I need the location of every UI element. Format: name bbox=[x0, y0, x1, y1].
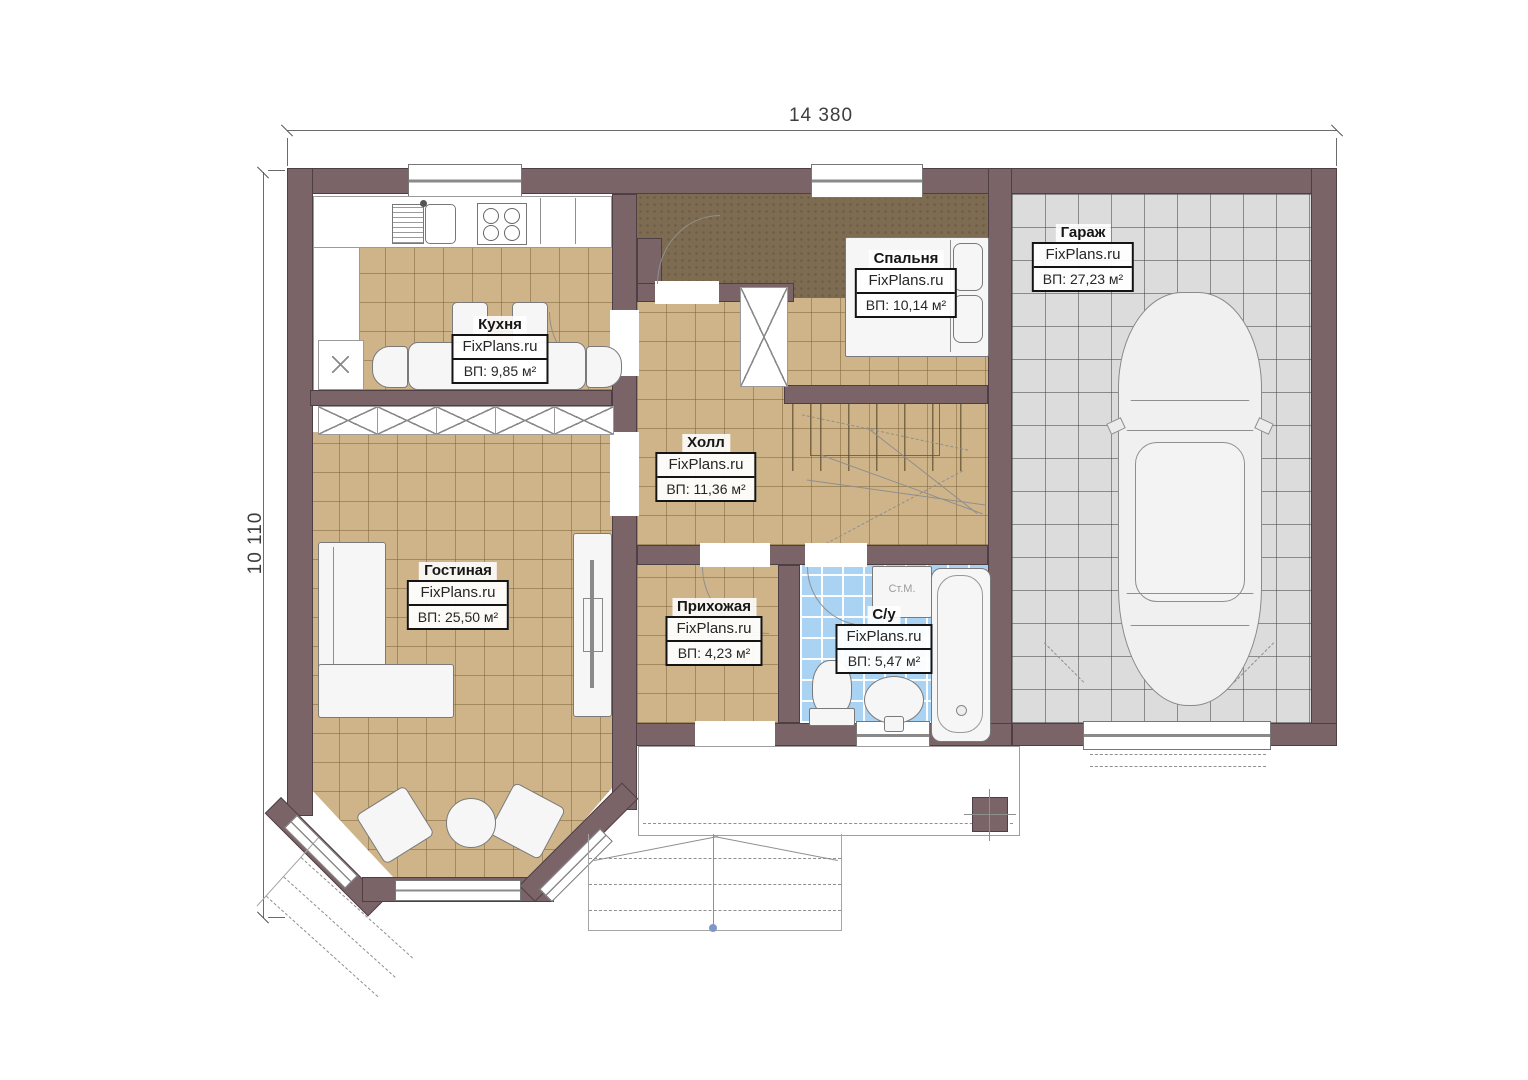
wardrobe-cell bbox=[378, 407, 437, 434]
pillow bbox=[953, 295, 983, 343]
dimension-extension bbox=[287, 138, 288, 166]
washing-machine-label: Ст.М. bbox=[873, 583, 931, 595]
room-label-box: FixPlans.ru ВП: 25,50 м² bbox=[407, 580, 509, 630]
chair bbox=[586, 346, 622, 388]
hall-entry-door-gap bbox=[700, 543, 770, 567]
washbasin-pedestal bbox=[884, 716, 904, 732]
watermark-text: FixPlans.ru bbox=[857, 270, 955, 294]
toilet-tank bbox=[809, 708, 855, 726]
car-windshield bbox=[1126, 430, 1254, 432]
step-line bbox=[589, 910, 841, 911]
room-label-box: FixPlans.ru ВП: 4,23 м² bbox=[665, 616, 762, 666]
room-area: ВП: 25,50 м² bbox=[409, 606, 507, 628]
room-name: С/у bbox=[867, 606, 900, 624]
car-hood-line bbox=[1130, 400, 1250, 402]
garage-door bbox=[1083, 721, 1271, 750]
chair bbox=[372, 346, 408, 388]
kitchen-sink-bowl bbox=[425, 204, 456, 244]
staircase-railing bbox=[810, 400, 940, 456]
porch-deck-edge bbox=[643, 823, 1013, 824]
room-name: Холл bbox=[682, 434, 730, 452]
room-label-garage: Гараж FixPlans.ru ВП: 27,23 м² bbox=[1032, 224, 1134, 292]
room-label-bedroom: Спальня FixPlans.ru ВП: 10,14 м² bbox=[855, 250, 957, 318]
kitchen-counter-divider bbox=[540, 198, 541, 244]
coffee-table-round bbox=[446, 798, 496, 848]
dimension-extension bbox=[268, 170, 285, 171]
room-label-bath: С/у FixPlans.ru ВП: 5,47 м² bbox=[835, 606, 932, 674]
stove-burner bbox=[504, 208, 520, 224]
room-label-living: Гостиная FixPlans.ru ВП: 25,50 м² bbox=[407, 562, 509, 630]
kitchen-counter-divider bbox=[575, 198, 576, 244]
dimension-height-label: 10 110 bbox=[245, 487, 267, 599]
room-name: Гостиная bbox=[419, 562, 497, 580]
watermark-text: FixPlans.ru bbox=[657, 454, 754, 478]
watermark-text: FixPlans.ru bbox=[1034, 244, 1132, 268]
kitchen-faucet bbox=[420, 200, 427, 207]
step-marker bbox=[709, 924, 717, 932]
driveway-dash bbox=[1090, 754, 1266, 755]
bedroom-window bbox=[811, 164, 923, 198]
bedroom-wardrobe bbox=[740, 287, 788, 387]
wardrobe-row bbox=[318, 406, 614, 435]
watermark-text: FixPlans.ru bbox=[409, 582, 507, 606]
step-axis bbox=[713, 834, 714, 930]
room-area: ВП: 5,47 м² bbox=[837, 650, 930, 672]
dimension-extension bbox=[1336, 138, 1337, 166]
room-label-entry: Прихожая FixPlans.ru ВП: 4,23 м² bbox=[665, 598, 762, 666]
car-top-view bbox=[1118, 292, 1264, 708]
kitchen-counter bbox=[313, 196, 612, 248]
dimension-width-label: 14 380 bbox=[760, 105, 882, 127]
entrance-steps bbox=[588, 834, 842, 931]
room-area: ВП: 9,85 м² bbox=[453, 360, 546, 382]
car-trunk-line bbox=[1130, 624, 1250, 626]
corner-sofa-chaise bbox=[318, 664, 454, 718]
room-name: Спальня bbox=[869, 250, 944, 268]
watermark-text: FixPlans.ru bbox=[453, 336, 546, 360]
room-label-box: FixPlans.ru ВП: 5,47 м² bbox=[835, 624, 932, 674]
exterior-wall-right bbox=[1311, 168, 1337, 746]
room-label-kitchen: Кухня FixPlans.ru ВП: 9,85 м² bbox=[451, 316, 548, 384]
kitchen-sink-drainboard bbox=[392, 204, 424, 244]
room-label-box: FixPlans.ru ВП: 9,85 м² bbox=[451, 334, 548, 384]
entry-bath-wall bbox=[778, 565, 800, 723]
room-name: Прихожая bbox=[672, 598, 756, 616]
watermark-text: FixPlans.ru bbox=[667, 618, 760, 642]
wardrobe-cell bbox=[555, 407, 613, 434]
living-hall-opening bbox=[610, 432, 639, 516]
wardrobe-cell bbox=[496, 407, 555, 434]
kitchen-corner-unit bbox=[318, 340, 364, 390]
kitchen-window bbox=[408, 164, 522, 198]
kitchen-living-wall bbox=[310, 390, 612, 406]
car-roof bbox=[1135, 442, 1245, 602]
garage-west-wall bbox=[988, 168, 1012, 746]
dimension-line-top bbox=[287, 130, 1337, 131]
stove bbox=[477, 203, 527, 245]
front-door-gap bbox=[695, 721, 775, 748]
corner-unit-x-mark bbox=[332, 356, 349, 373]
tv-base bbox=[583, 598, 603, 652]
exterior-wall-left bbox=[287, 168, 313, 816]
bathtub bbox=[931, 568, 991, 742]
room-label-box: FixPlans.ru ВП: 11,36 м² bbox=[655, 452, 756, 502]
watermark-text: FixPlans.ru bbox=[837, 626, 930, 650]
room-label-box: FixPlans.ru ВП: 10,14 м² bbox=[855, 268, 957, 318]
room-name: Гараж bbox=[1056, 224, 1111, 242]
floor-plan-canvas: 14 380 10 110 bbox=[0, 0, 1528, 1080]
room-area: ВП: 4,23 м² bbox=[667, 642, 760, 664]
driveway-dash bbox=[1090, 766, 1266, 767]
hall-bath-door-gap bbox=[805, 543, 867, 567]
room-label-box: FixPlans.ru ВП: 27,23 м² bbox=[1032, 242, 1134, 292]
step-line bbox=[589, 884, 841, 885]
porch-column-axis bbox=[989, 789, 990, 841]
stove-burner bbox=[504, 225, 520, 241]
pillow bbox=[953, 243, 983, 291]
room-area: ВП: 27,23 м² bbox=[1034, 268, 1132, 290]
stove-burner bbox=[483, 225, 499, 241]
bedroom-door-gap bbox=[655, 281, 719, 304]
wardrobe-cell bbox=[437, 407, 496, 434]
porch bbox=[638, 746, 1020, 836]
room-label-hall: Холл FixPlans.ru ВП: 11,36 м² bbox=[655, 434, 756, 502]
bathtub-drain bbox=[956, 705, 967, 716]
stove-burner bbox=[483, 208, 499, 224]
bay-window-bottom bbox=[395, 880, 521, 901]
car-rear-window bbox=[1126, 592, 1254, 594]
tv-cabinet bbox=[573, 533, 612, 717]
room-name: Кухня bbox=[473, 316, 527, 334]
wardrobe-cell bbox=[319, 407, 378, 434]
bedroom-south-wall bbox=[784, 385, 988, 404]
room-area: ВП: 10,14 м² bbox=[857, 294, 955, 316]
room-area: ВП: 11,36 м² bbox=[657, 478, 754, 500]
step-line bbox=[589, 858, 841, 859]
